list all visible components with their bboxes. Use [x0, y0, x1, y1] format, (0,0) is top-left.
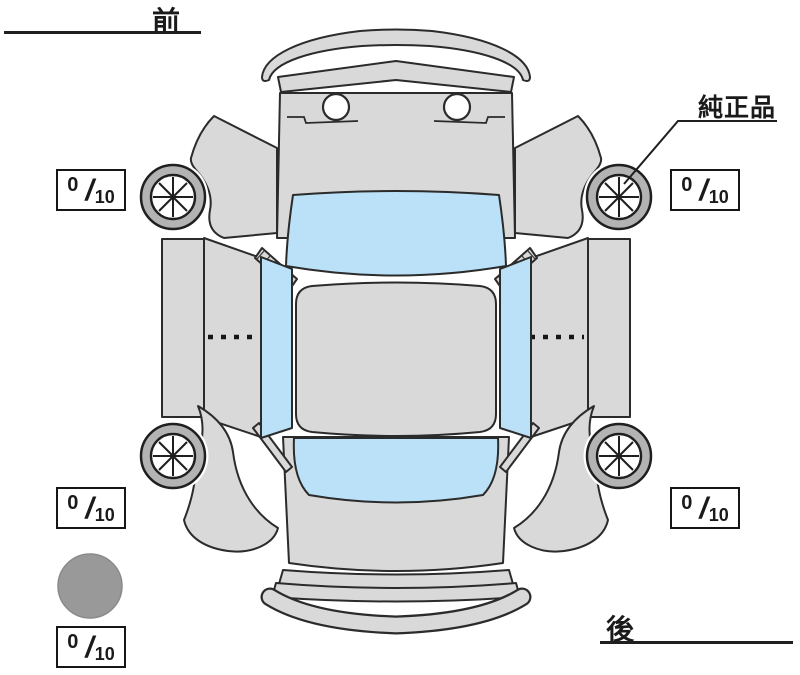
right-side-panels: [530, 238, 630, 437]
score-max: 10: [709, 506, 729, 524]
rear-left-wheel-icon: [138, 421, 209, 492]
left-outer-door-panel: [162, 239, 204, 417]
score-separator: /: [85, 176, 93, 206]
car-top-view-svg: [0, 0, 800, 675]
score-max: 10: [95, 188, 115, 206]
right-outer-door-panel: [588, 239, 630, 417]
windshield: [286, 191, 506, 276]
rear-right-tire-score-box: 0/10: [670, 487, 740, 529]
left-side-panels: [162, 238, 261, 437]
gray-circle-marker: [58, 554, 122, 618]
bottom-left-tire-score-box: 0/10: [56, 626, 126, 668]
rear-left-tire-score-box: 0/10: [56, 487, 126, 529]
right-headlight-icon: [444, 94, 470, 120]
score-value: 0: [681, 493, 692, 513]
front-label: 前: [152, 0, 180, 40]
score-separator: /: [85, 633, 93, 663]
score-value: 0: [67, 493, 78, 513]
left-side-window: [261, 257, 292, 438]
rear-window: [294, 438, 498, 503]
front-left-fender: [191, 116, 277, 238]
genuine-part-label: 純正品: [698, 88, 776, 124]
score-separator: /: [85, 494, 93, 524]
front-right-wheel-icon: [584, 162, 655, 233]
front-left-tire-score-box: 0/10: [56, 169, 126, 211]
left-headlight-icon: [323, 94, 349, 120]
front-cowl-panel: [278, 61, 514, 92]
right-side-window: [500, 257, 531, 438]
score-max: 10: [709, 188, 729, 206]
rear-label-underline: [600, 641, 793, 644]
rear-right-wheel-icon: [584, 421, 655, 492]
front-right-fender: [515, 116, 601, 238]
score-separator: /: [699, 494, 707, 524]
front-label-underline: [4, 31, 201, 34]
score-value: 0: [67, 175, 78, 195]
score-value: 0: [67, 632, 78, 652]
score-max: 10: [95, 506, 115, 524]
score-max: 10: [95, 645, 115, 663]
car-condition-diagram: 前 純正品 後 0/10 0/10 0/10 0/10 0/10: [0, 0, 800, 675]
roof-panel: [296, 283, 496, 437]
front-right-tire-score-box: 0/10: [670, 169, 740, 211]
score-value: 0: [681, 175, 692, 195]
score-separator: /: [699, 176, 707, 206]
front-left-wheel-icon: [138, 162, 209, 233]
